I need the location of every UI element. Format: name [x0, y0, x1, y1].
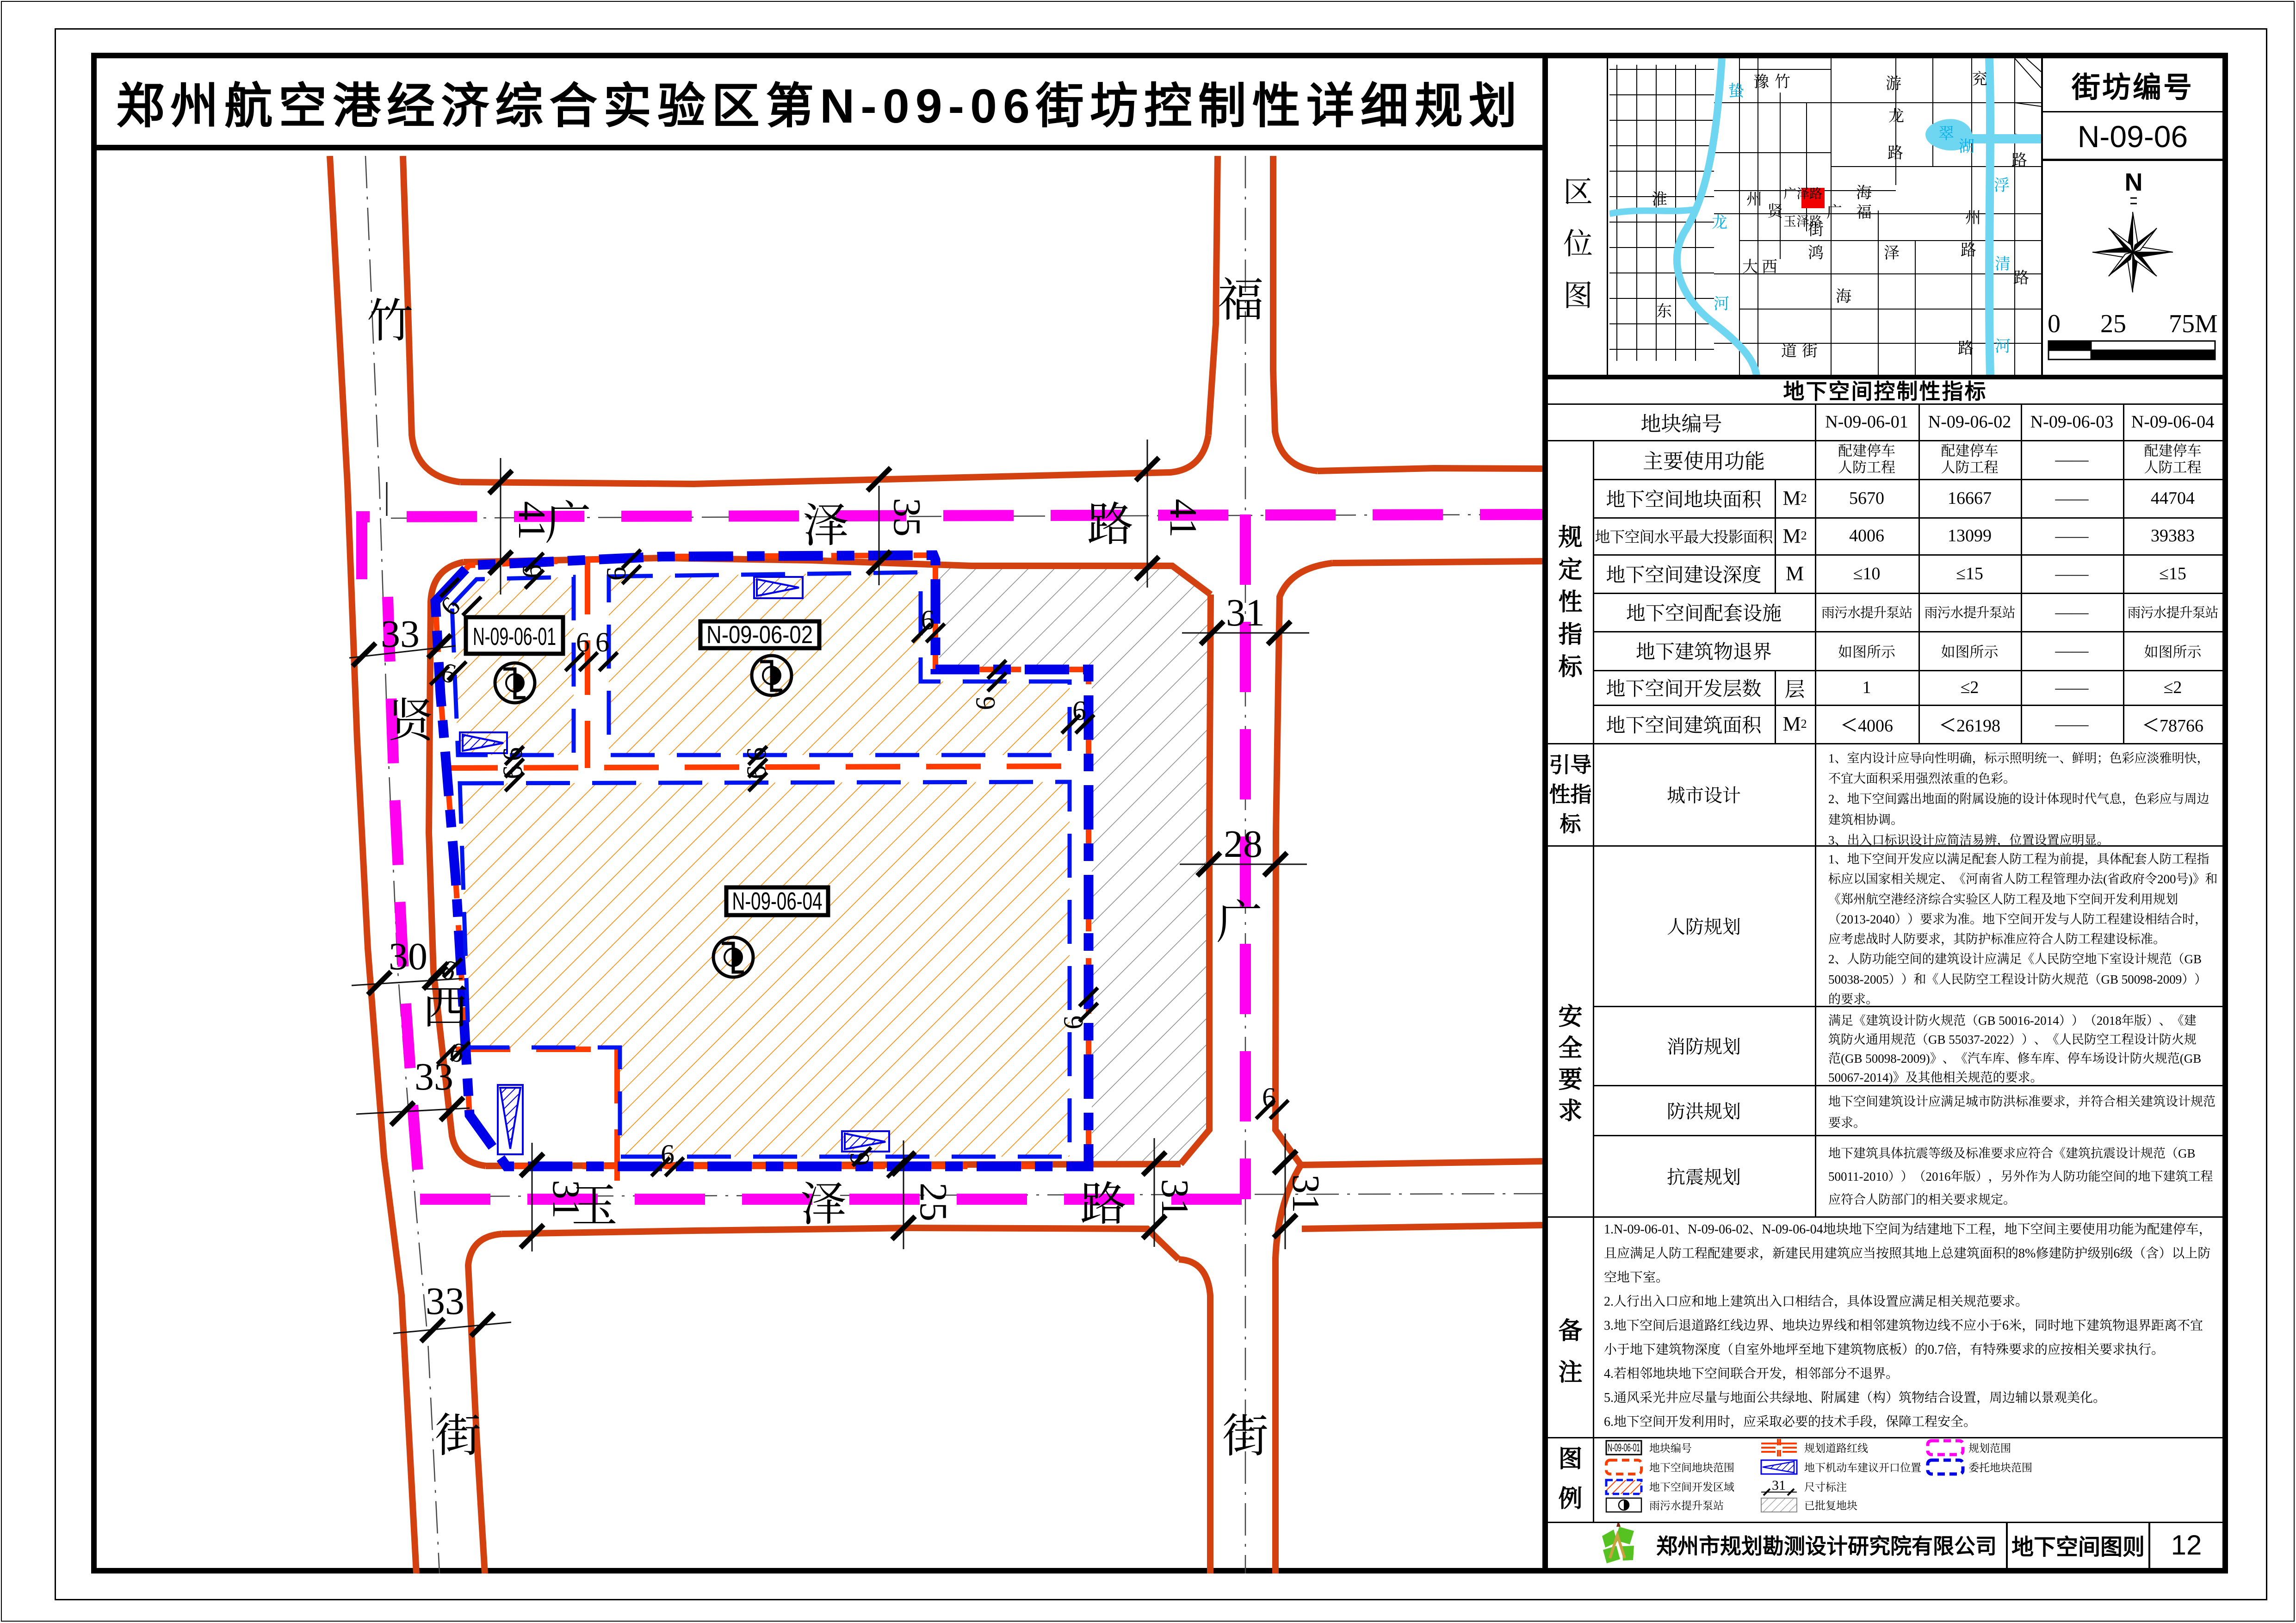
svg-text:街: 街: [1222, 1411, 1269, 1462]
svg-text:规划范围: 规划范围: [1968, 1443, 2011, 1454]
svg-text:翠: 翠: [1938, 125, 1954, 142]
svg-text:泽: 泽: [803, 500, 849, 551]
svg-text:委托地块范围: 委托地块范围: [1968, 1462, 2032, 1474]
svg-text:25: 25: [912, 1183, 955, 1221]
svg-text:路: 路: [2013, 269, 2029, 287]
svg-text:路: 路: [1087, 499, 1133, 551]
svg-text:N-09-06-02: N-09-06-02: [706, 621, 813, 649]
svg-text:尺寸标注: 尺寸标注: [1804, 1481, 1847, 1493]
svg-text:兖: 兖: [1972, 70, 1987, 88]
svg-text:N-09-06-01: N-09-06-01: [473, 623, 556, 650]
svg-text:6: 6: [970, 696, 1001, 710]
svg-text:泽: 泽: [800, 1179, 847, 1230]
svg-text:规划道路红线: 规划道路红线: [1804, 1443, 1868, 1454]
svg-text:街: 街: [435, 1410, 481, 1462]
svg-text:湖: 湖: [1959, 138, 1974, 155]
svg-text:41: 41: [510, 501, 553, 540]
svg-text:已批复地块: 已批复地块: [1804, 1500, 1857, 1511]
svg-text:西: 西: [1762, 259, 1777, 276]
svg-text:竹: 竹: [367, 296, 413, 347]
svg-text:广泽路: 广泽路: [1783, 186, 1822, 201]
svg-text:海: 海: [1856, 184, 1872, 202]
svg-text:地下空间开发区域: 地下空间开发区域: [1649, 1481, 1734, 1493]
svg-text:75M: 75M: [2169, 310, 2218, 338]
svg-text:豫: 豫: [1753, 73, 1769, 91]
svg-text:28: 28: [1224, 823, 1262, 866]
svg-text:游: 游: [1886, 75, 1901, 93]
svg-text:地下机动车建议开口位置: 地下机动车建议开口位置: [1804, 1462, 1921, 1474]
svg-text:州: 州: [1965, 210, 1981, 227]
svg-text:路: 路: [1958, 340, 1974, 357]
svg-text:龙: 龙: [1888, 107, 1904, 125]
svg-text:N-09-06-04: N-09-06-04: [732, 887, 823, 915]
svg-text:30: 30: [389, 935, 427, 978]
svg-text:街: 街: [1802, 343, 1818, 360]
svg-text:33: 33: [381, 613, 420, 656]
svg-text:路: 路: [1961, 242, 1976, 259]
svg-text:州: 州: [1746, 191, 1762, 208]
svg-text:25: 25: [2100, 310, 2126, 338]
svg-text:广: 广: [1826, 204, 1842, 221]
svg-text:0: 0: [2048, 310, 2061, 338]
svg-text:河: 河: [1995, 338, 2011, 355]
svg-text:海: 海: [1836, 288, 1851, 305]
svg-text:浮: 浮: [1994, 177, 2010, 194]
svg-text:玉泽路: 玉泽路: [1783, 214, 1822, 229]
svg-text:地下空间地块范围: 地下空间地块范围: [1649, 1462, 1734, 1474]
svg-text:道: 道: [1781, 342, 1797, 360]
svg-text:N: N: [2125, 168, 2143, 196]
svg-text:31: 31: [1284, 1174, 1327, 1213]
svg-text:路: 路: [1888, 144, 1903, 162]
svg-text:鸿: 鸿: [1808, 245, 1824, 262]
svg-text:31: 31: [545, 1180, 588, 1219]
svg-text:31: 31: [1226, 591, 1265, 634]
svg-text:贤: 贤: [1767, 203, 1784, 220]
svg-text:41: 41: [1162, 499, 1205, 538]
svg-text:蛰: 蛰: [1728, 82, 1744, 100]
svg-text:35: 35: [885, 498, 928, 537]
svg-text:福: 福: [1218, 275, 1264, 326]
svg-text:东: 东: [1656, 303, 1672, 320]
svg-text:雨污水提升泵站: 雨污水提升泵站: [1649, 1500, 1724, 1511]
svg-text:N-09-06-01: N-09-06-01: [1608, 1442, 1640, 1454]
svg-text:地块编号: 地块编号: [1649, 1443, 1692, 1454]
svg-text:大: 大: [1742, 258, 1758, 276]
svg-text:竹: 竹: [1775, 73, 1790, 91]
svg-text:龙: 龙: [1712, 214, 1727, 231]
svg-text:31: 31: [1153, 1179, 1196, 1218]
svg-text:路: 路: [1080, 1179, 1126, 1230]
svg-text:泽: 泽: [1884, 245, 1900, 262]
svg-text:广: 广: [1216, 897, 1262, 948]
svg-text:清: 清: [1995, 255, 2011, 273]
svg-text:河: 河: [1714, 296, 1729, 313]
svg-text:33: 33: [426, 1280, 464, 1323]
svg-text:淮: 淮: [1652, 191, 1667, 208]
svg-text:西: 西: [422, 982, 468, 1034]
svg-text:贤: 贤: [388, 695, 436, 747]
svg-text:路: 路: [2011, 152, 2027, 169]
svg-text:31: 31: [1772, 1478, 1786, 1493]
svg-text:福: 福: [1856, 204, 1872, 221]
